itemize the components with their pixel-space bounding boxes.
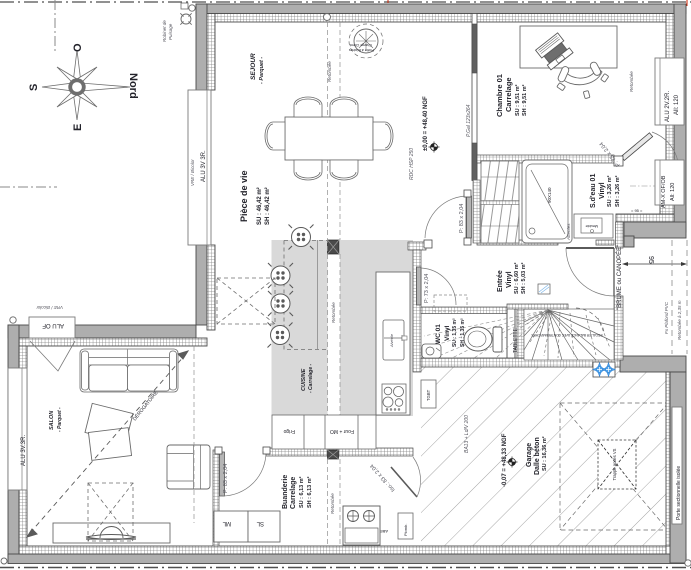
svg-text:SEJOUR: SEJOUR bbox=[250, 53, 257, 80]
svg-text:SU : 3,26 m²: SU : 3,26 m² bbox=[606, 175, 613, 207]
svg-text:P: 73 x 2,04: P: 73 x 2,04 bbox=[424, 274, 430, 303]
svg-text:SU : 1,35 m²: SU : 1,35 m² bbox=[452, 318, 458, 347]
svg-text:Dalle béton: Dalle béton bbox=[534, 437, 541, 475]
svg-text:S: S bbox=[28, 84, 40, 91]
svg-text:90X140: 90X140 bbox=[547, 187, 552, 203]
svg-text:RDC HSP 250: RDC HSP 250 bbox=[409, 148, 415, 180]
svg-text:Retombée: Retombée bbox=[629, 71, 634, 92]
svg-text:Meuble: Meuble bbox=[586, 224, 598, 228]
svg-text:Buanderie: Buanderie bbox=[282, 475, 289, 509]
svg-text:All: 120: All: 120 bbox=[674, 94, 680, 115]
svg-text:Vinyl: Vinyl bbox=[506, 271, 513, 288]
svg-text:Trappe accès VS: Trappe accès VS bbox=[612, 448, 617, 480]
svg-text:ALU 3V.3R.: ALU 3V.3R. bbox=[21, 435, 27, 466]
svg-text:ESCALIER BALANCÉ AVEC CONTREMA: ESCALIER BALANCÉ AVEC CONTREMARCHES bbox=[532, 333, 603, 338]
svg-text:Retombée: Retombée bbox=[327, 61, 332, 82]
svg-text:ALU 2V.2R.: ALU 2V.2R. bbox=[665, 91, 671, 122]
svg-text:Puisage: Puisage bbox=[168, 23, 173, 40]
svg-text:SH : 3,26 m²: SH : 3,26 m² bbox=[614, 175, 621, 207]
svg-text:-0,07 = +48,33 NGF: -0,07 = +48,33 NGF bbox=[502, 433, 508, 487]
svg-text:All: 120: All: 120 bbox=[670, 183, 676, 201]
svg-text:Carrelage: Carrelage bbox=[290, 477, 297, 509]
svg-text:Garage: Garage bbox=[526, 443, 533, 467]
svg-text:ML: ML bbox=[222, 520, 231, 526]
svg-text:Charge Client: Charge Client bbox=[350, 43, 372, 47]
svg-text:P.Gal 123x264: P.Gal 123x264 bbox=[466, 104, 472, 137]
svg-text:Plomb.: Plomb. bbox=[403, 524, 408, 536]
svg-text:SL: SL bbox=[256, 520, 264, 526]
svg-text:CUISINE: CUISINE bbox=[301, 368, 307, 391]
svg-text:Entrée: Entrée bbox=[497, 270, 504, 292]
svg-text:= 95 =: = 95 = bbox=[631, 208, 643, 213]
svg-text:Chambre 01: Chambre 01 bbox=[495, 74, 504, 117]
svg-text:Fx Plafond PVC: Fx Plafond PVC bbox=[664, 301, 669, 334]
svg-text:95: 95 bbox=[647, 256, 654, 264]
svg-text:- Carrelage -: - Carrelage - bbox=[308, 363, 314, 393]
svg-text:Carrelage: Carrelage bbox=[504, 77, 513, 112]
svg-text:O: O bbox=[72, 43, 84, 52]
svg-text:- Parquet -: - Parquet - bbox=[57, 407, 63, 432]
svg-text:BA13 + Ld/V 200: BA13 + Ld/V 200 bbox=[464, 415, 470, 453]
svg-text:SALON: SALON bbox=[49, 410, 55, 430]
svg-text:Attentes: Attentes bbox=[566, 223, 571, 241]
svg-text:AM-X OF/OB: AM-X OF/OB bbox=[661, 175, 667, 208]
svg-text:ALU OF: ALU OF bbox=[42, 322, 64, 328]
svg-text:VRE / Bicolor: VRE / Bicolor bbox=[36, 305, 63, 310]
svg-text:Pièce de vie: Pièce de vie bbox=[239, 170, 249, 222]
svg-text:±0,00 = +48,40 NGF: ±0,00 = +48,40 NGF bbox=[423, 96, 429, 151]
svg-text:Nord: Nord bbox=[127, 73, 139, 99]
svg-text:S.d'eau 01: S.d'eau 01 bbox=[590, 174, 597, 208]
svg-text:Porte sectionnelle isolée: Porte sectionnelle isolée bbox=[676, 466, 682, 520]
svg-text:SU : 46,42 m²: SU : 46,42 m² bbox=[256, 187, 263, 225]
svg-text:Retombée à 2,35 m: Retombée à 2,35 m bbox=[677, 300, 682, 340]
svg-text:SH : 5,03 m²: SH : 5,03 m² bbox=[520, 262, 527, 294]
svg-text:Retombée: Retombée bbox=[331, 302, 336, 323]
svg-text:SU : 16,36 m²: SU : 16,36 m² bbox=[541, 436, 548, 471]
svg-text:SH : 6,13 m²: SH : 6,13 m² bbox=[306, 476, 313, 508]
svg-text:TGBT: TGBT bbox=[426, 389, 431, 401]
svg-text:TABLETTE: TABLETTE bbox=[513, 327, 519, 353]
svg-text:- Parquet -: - Parquet - bbox=[259, 57, 265, 84]
svg-text:Robinet de: Robinet de bbox=[162, 20, 167, 42]
svg-text:P: 83 x 2,04: P: 83 x 2,04 bbox=[459, 204, 465, 233]
svg-text:SU : 6,13 m²: SU : 6,13 m² bbox=[298, 476, 305, 508]
svg-text:Frigo: Frigo bbox=[283, 428, 295, 434]
svg-text:VRE / Bicolor: VRE / Bicolor bbox=[190, 159, 195, 186]
svg-text:E: E bbox=[72, 124, 84, 131]
svg-text:"BRUME ou CANOPÉE": "BRUME ou CANOPÉE" bbox=[616, 245, 623, 310]
svg-text:ABE: ABE bbox=[380, 529, 388, 534]
svg-text:SH : 9,51 m²: SH : 9,51 m² bbox=[521, 84, 528, 116]
svg-text:Alvéole: Alvéole bbox=[389, 333, 394, 348]
svg-text:ALU 3V 3R.: ALU 3V 3R. bbox=[201, 150, 207, 182]
svg-text:Vinyl: Vinyl bbox=[599, 182, 606, 199]
svg-text:SH : 46,42 m²: SH : 46,42 m² bbox=[264, 187, 271, 225]
svg-text:Vinyl: Vinyl bbox=[444, 325, 451, 341]
svg-text:SH : 1,35 m²: SH : 1,35 m² bbox=[460, 318, 466, 347]
svg-text:SU : 9,51 m²: SU : 9,51 m² bbox=[514, 84, 521, 116]
svg-text:WC 01: WC 01 bbox=[435, 324, 442, 344]
svg-text:SU : 6,60 m²: SU : 6,60 m² bbox=[513, 262, 520, 294]
svg-text:Four + MO: Four + MO bbox=[330, 428, 354, 434]
svg-text:Poêle à Bûches: Poêle à Bûches bbox=[349, 48, 374, 52]
svg-text:Retombée: Retombée bbox=[330, 493, 335, 514]
svg-text:P: 83 x 2,04: P: 83 x 2,04 bbox=[223, 464, 229, 493]
